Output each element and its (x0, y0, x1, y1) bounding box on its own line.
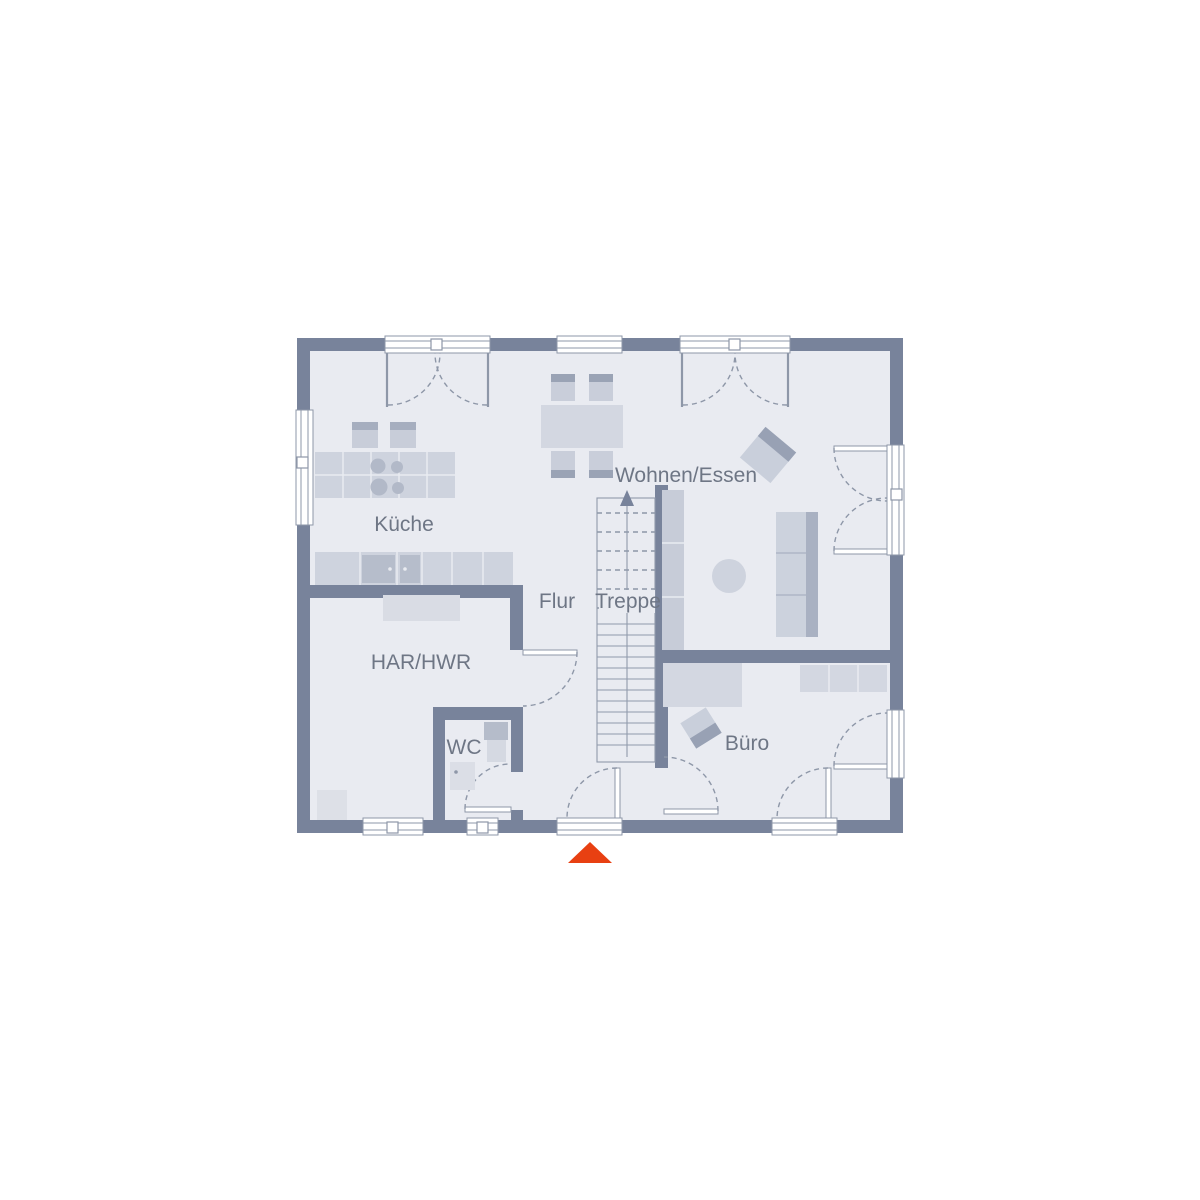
bar-stool (352, 422, 378, 448)
wash-basin (450, 762, 475, 790)
room-label-flur: Flur (539, 590, 575, 613)
dishwasher-appliance (400, 555, 420, 583)
wall-wc-right-stub (511, 810, 523, 820)
room-label-treppe: Treppe (595, 590, 661, 613)
coffee-table (712, 559, 746, 593)
wall-wc-right (511, 720, 523, 772)
washer (383, 595, 460, 621)
room-label-buero: Büro (725, 732, 769, 755)
entrance-marker-icon (568, 842, 612, 863)
floor-plan-svg: Küche Wohnen/Essen Flur Treppe HAR/HWR W… (0, 0, 1200, 1200)
wall-wc-left (433, 720, 445, 820)
wash-basin-faucet (454, 770, 458, 774)
shelf (800, 665, 887, 692)
dining-chair (551, 451, 575, 478)
dining-chair (589, 374, 613, 401)
dining-table (541, 405, 623, 448)
oven-knob (388, 567, 392, 571)
dining-chair (589, 451, 613, 478)
bar-stool (390, 422, 416, 448)
room-label-kueche: Küche (374, 513, 434, 536)
dishwasher-knob (403, 567, 407, 571)
sideboard (662, 490, 684, 650)
wall-har-right (510, 598, 523, 650)
wall-wc-top (433, 707, 523, 720)
desk (663, 663, 742, 707)
window-bottom-har (363, 818, 423, 835)
floor-plan-page: Küche Wohnen/Essen Flur Treppe HAR/HWR W… (0, 0, 1200, 1200)
toilet-bowl (487, 740, 506, 762)
window-bottom-wc (467, 818, 498, 835)
window-top-dining (557, 336, 622, 353)
room-label-wohnen-essen: Wohnen/Essen (615, 464, 757, 487)
toilet-tank (484, 722, 508, 740)
sofa (776, 512, 818, 637)
room-label-har-hwr: HAR/HWR (371, 651, 471, 674)
room-label-wc: WC (447, 736, 482, 759)
dining-chair (551, 374, 575, 401)
wall-living-office (655, 650, 890, 663)
storage-box (317, 790, 347, 820)
window-left-kitchen (296, 410, 313, 525)
